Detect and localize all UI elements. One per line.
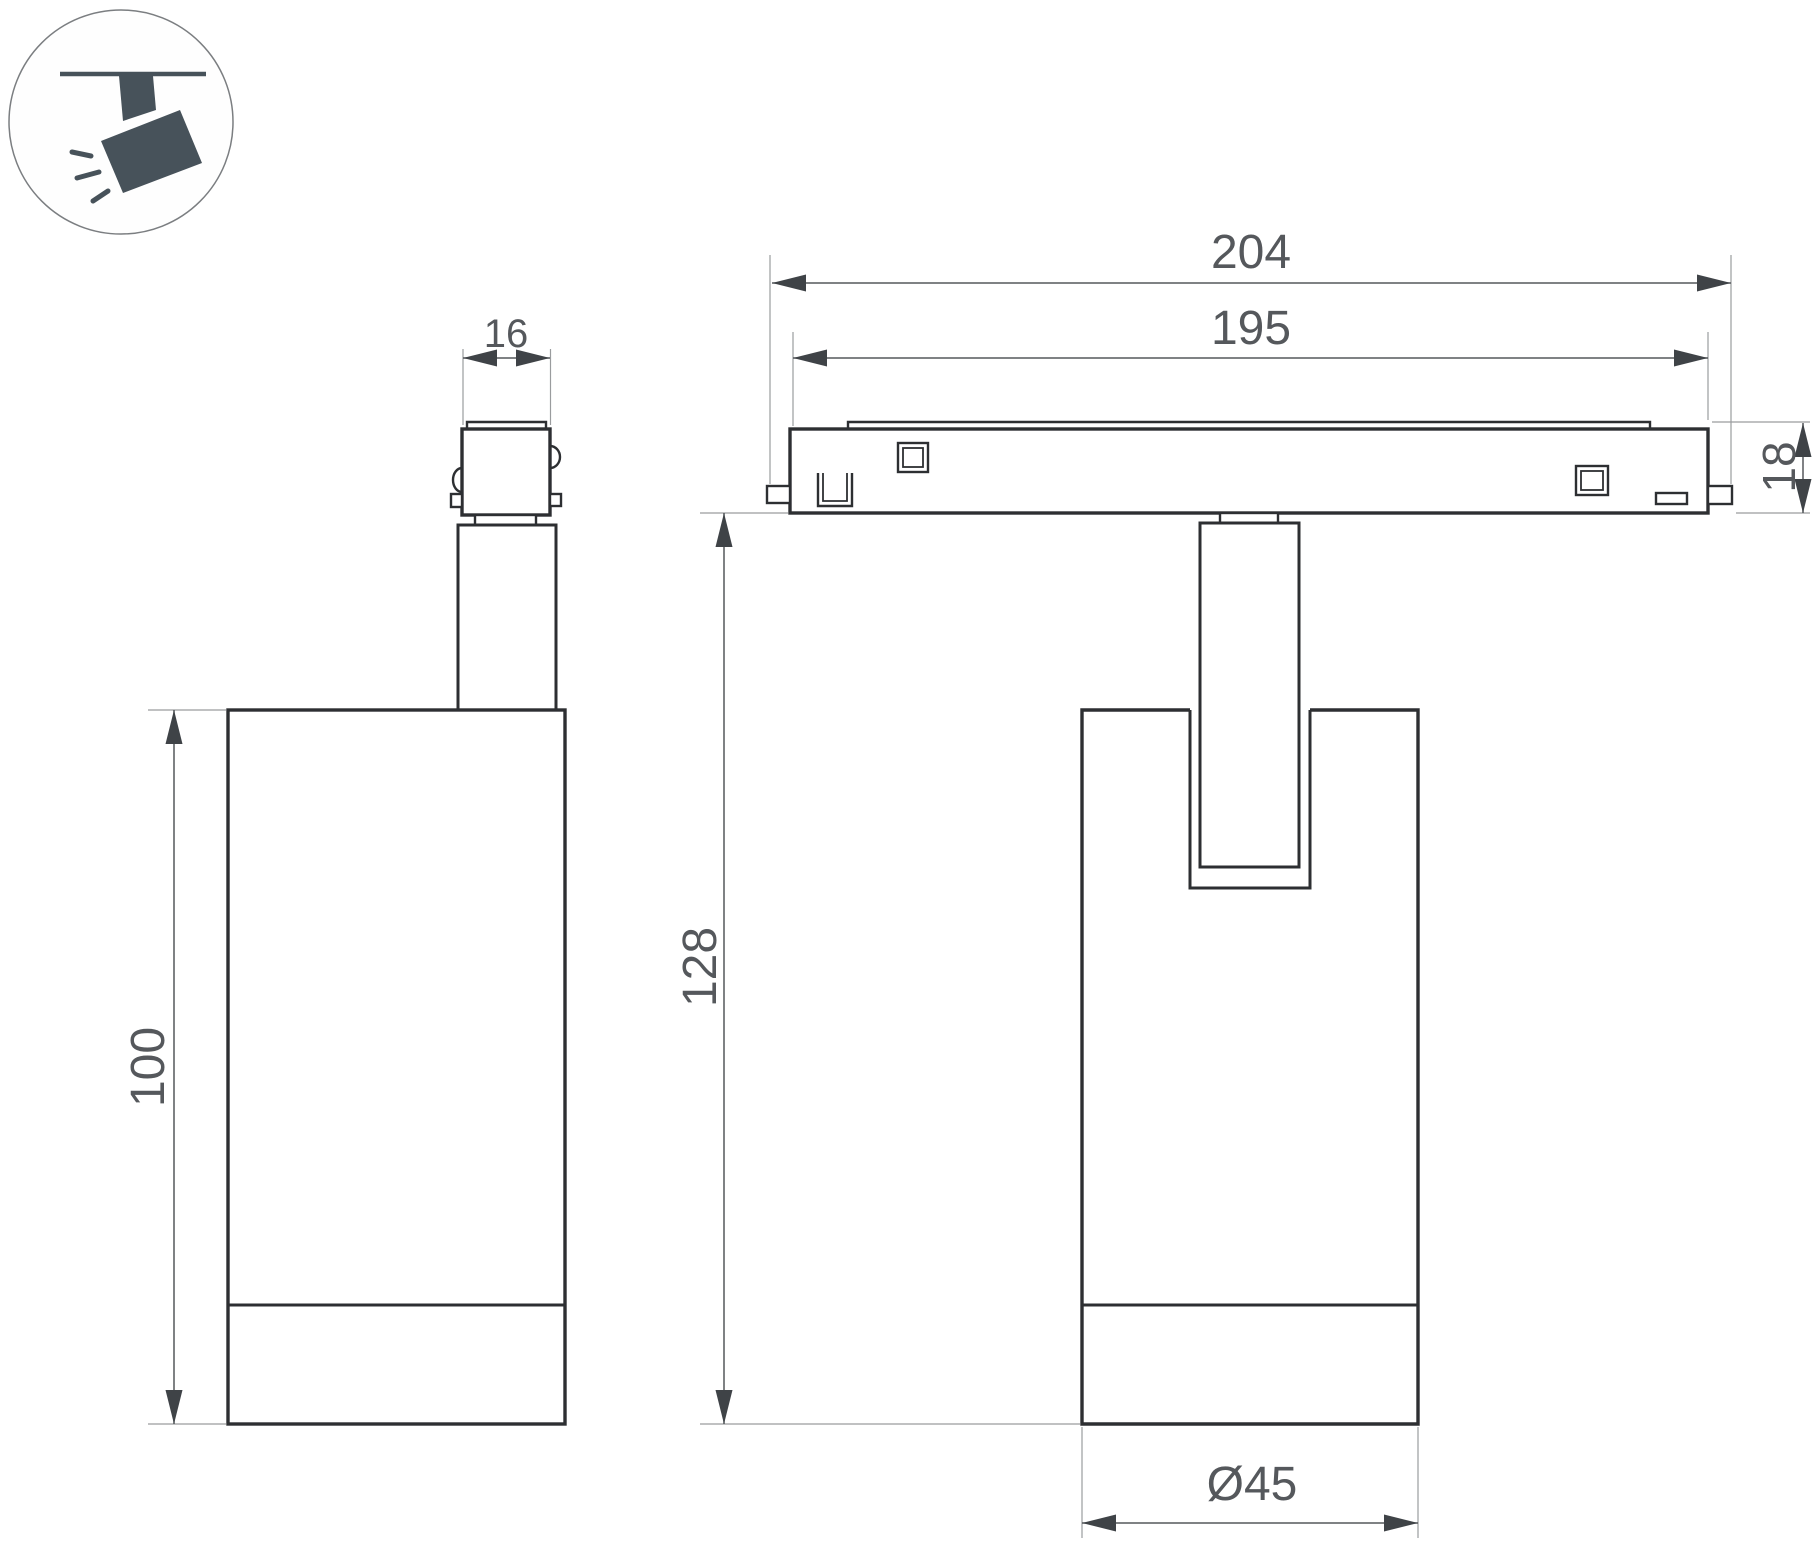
dim-195-arrow-right xyxy=(1674,350,1708,367)
dim-overall-height: 128 xyxy=(674,513,1080,1424)
icon-circle xyxy=(9,10,233,234)
front-track-right-tab xyxy=(1708,486,1732,504)
dim-195-label: 195 xyxy=(1211,302,1291,355)
dim-body-diameter: Ø45 xyxy=(1082,1427,1418,1538)
dim-18-label: 18 xyxy=(1753,441,1805,492)
dim-128-arrow-bottom xyxy=(716,1390,733,1424)
drawing-canvas: 16 100 204 195 18 xyxy=(0,0,1812,1548)
dim-45-arrow-left xyxy=(1082,1515,1116,1532)
dim-100-arrow-top xyxy=(166,710,183,744)
dim-45-label: Ø45 xyxy=(1207,1458,1298,1511)
side-lamp-body xyxy=(228,710,565,1424)
front-view xyxy=(767,422,1732,1424)
dim-45-arrow-right xyxy=(1384,1515,1418,1532)
dim-128-label: 128 xyxy=(674,927,727,1007)
dim-body-height: 100 xyxy=(122,710,226,1424)
dim-204-arrow-right xyxy=(1697,275,1731,292)
side-adapter-right-tab xyxy=(550,494,561,506)
dim-track-inner-width: 195 xyxy=(793,302,1708,426)
dim-100-arrow-bottom xyxy=(166,1390,183,1424)
dim-204-label: 204 xyxy=(1211,226,1291,279)
side-stem xyxy=(458,525,556,710)
side-track-adapter xyxy=(462,429,550,515)
dimension-drawing-page: 16 100 204 195 18 xyxy=(0,0,1812,1548)
ceiling-track-spotlight-icon xyxy=(9,10,233,234)
dim-16-label: 16 xyxy=(484,312,529,356)
dim-128-arrow-top xyxy=(716,513,733,547)
front-stem xyxy=(1200,523,1299,867)
dim-195-arrow-left xyxy=(793,350,827,367)
dim-adapter-width: 16 xyxy=(463,312,551,425)
front-track-left-tab xyxy=(767,486,790,503)
side-view xyxy=(228,422,565,1424)
dim-204-arrow-left xyxy=(772,275,806,292)
side-adapter-left-tab xyxy=(451,494,462,507)
dim-100-label: 100 xyxy=(122,1027,175,1107)
